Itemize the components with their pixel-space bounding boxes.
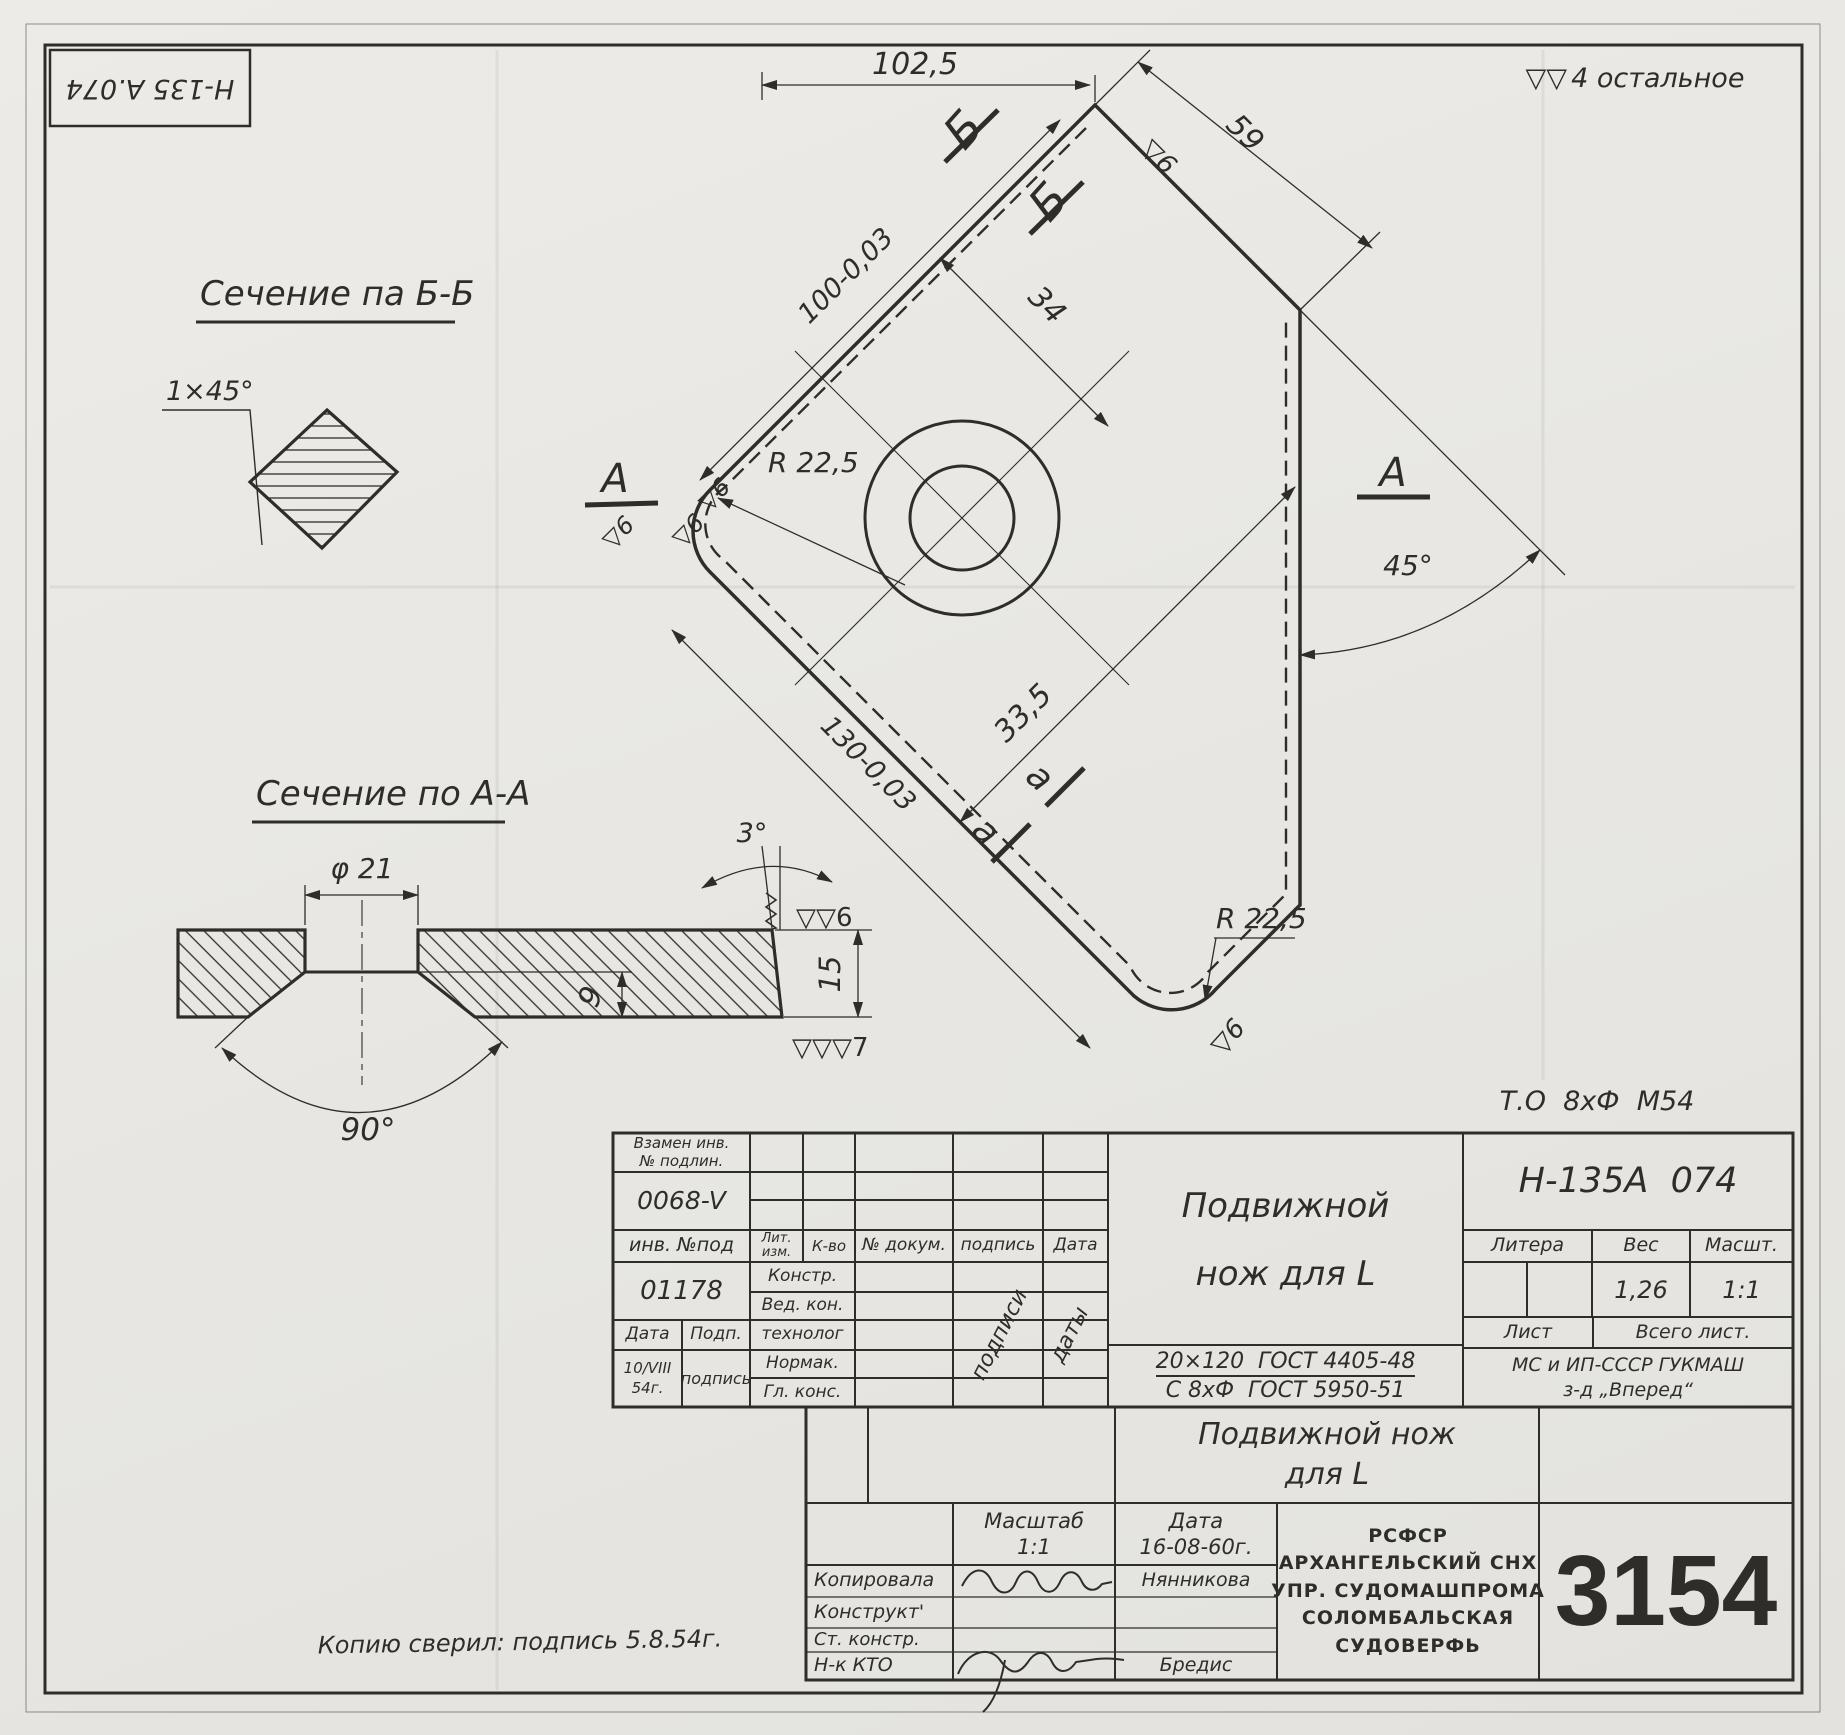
corner-code: Н-135 А.074: [50, 50, 250, 126]
section-aa-diameter: φ 21: [331, 852, 394, 885]
centerlines: [795, 351, 1129, 685]
col-lit-1: Лит.: [762, 1232, 792, 1246]
org-cell: МС и ИП-СССР ГУКМАШ з-д „Вперед“: [1463, 1348, 1793, 1407]
dim-33-5: 33,5: [987, 677, 1059, 749]
section-bb-shape: [250, 410, 397, 548]
date2-value: 16-08-60г.: [1139, 1534, 1252, 1560]
section-bb-view: Сечение па Б-Б 1×45°: [162, 274, 475, 548]
section-b-label-2: Б: [1017, 171, 1078, 231]
replaced-inv-label-1: Взамен инв.: [634, 1135, 730, 1152]
part-title-2: нож для L: [1196, 1253, 1376, 1296]
finish-mark-left-3: ▽6: [692, 473, 736, 517]
col-lit: Лит. изм.: [750, 1230, 803, 1262]
sheet-label: Лист: [1463, 1317, 1593, 1348]
title2-line-1: Подвижной нож: [1198, 1415, 1456, 1456]
dim-102-5: 102,5: [872, 47, 958, 82]
signatures: [958, 1570, 1124, 1712]
inv-value: 01178: [613, 1262, 750, 1320]
section-bb-title: Сечение па Б-Б: [200, 274, 475, 314]
finish-mark-left-2: ▽6: [666, 509, 710, 553]
finish-note-text: 4 остальное: [1571, 62, 1744, 96]
title2-line-2: для L: [1285, 1455, 1369, 1496]
drawing-sheet: 102,5 59 100-0,03 34 33,5 130-0,03 R 22,…: [0, 0, 1845, 1735]
row-nk: Н-к КТО: [806, 1652, 953, 1680]
title2-cell: Подвижной нож для L: [1115, 1410, 1539, 1500]
replaced-inv-value: 0068-V: [613, 1172, 750, 1230]
section-bb-chamfer: 1×45°: [166, 376, 254, 407]
role-normak: Нормак.: [750, 1350, 855, 1378]
section-a-right-label: А: [1376, 450, 1406, 496]
podp-label: Подп.: [682, 1320, 750, 1350]
date-label: Дата: [613, 1320, 682, 1350]
doc-number: Н-135А 074: [1463, 1138, 1793, 1226]
role-konstr: Констр.: [750, 1262, 855, 1292]
weight-value: 1,26: [1592, 1262, 1690, 1317]
copy-note: Копию сверил: подпись 5.8.54г.: [300, 1618, 741, 1666]
row-copied: Копировала: [806, 1565, 953, 1597]
weight-label: Вес: [1592, 1230, 1690, 1262]
nk-signature-flourish: [983, 1660, 1005, 1712]
main-view: 102,5 59 100-0,03 34 33,5 130-0,03 R 22,…: [585, 47, 1565, 1061]
section-a-small-2: а: [964, 809, 1008, 854]
finish-mark-left-1: ▽6: [596, 511, 640, 555]
date-value-2: 54г.: [632, 1379, 664, 1399]
finish-mark-bottom: ▽6: [1205, 1013, 1252, 1060]
dim-100: 100-0,03: [792, 222, 900, 330]
date2-label: Дата: [1169, 1508, 1223, 1534]
org-line-1: МС и ИП-СССР ГУКМАШ: [1512, 1353, 1744, 1378]
podp-value: подпись: [682, 1350, 750, 1407]
radius-left-label: R 22,5: [768, 446, 859, 479]
material-line-2: С 8хФ ГОСТ 5950-51: [1166, 1377, 1406, 1405]
role-technolog: технолог: [750, 1320, 855, 1350]
part-title: Подвижной нож для L: [1108, 1150, 1463, 1330]
section-aa-90: 90°: [341, 1112, 396, 1148]
section-a-left-label: А: [598, 456, 628, 502]
nk-name: Бредис: [1115, 1652, 1277, 1680]
scale2-cell: Масштаб 1:1: [953, 1503, 1115, 1565]
replaced-inv-label-2: № подлин.: [640, 1153, 724, 1170]
scale2-label: Масштаб: [984, 1508, 1084, 1534]
copied-name: Нянникова: [1115, 1565, 1277, 1597]
replaced-inv-label: Взамен инв. № подлин.: [613, 1133, 750, 1172]
material-spec: 20×120 ГОСТ 4405-48 С 8хФ ГОСТ 5950-51: [1108, 1345, 1463, 1407]
row-senior: Ст. констр.: [806, 1628, 953, 1652]
section-b-label-1: Б: [932, 99, 993, 159]
drawing-canvas: 102,5 59 100-0,03 34 33,5 130-0,03 R 22,…: [0, 0, 1845, 1735]
col-sign: подпись: [953, 1230, 1043, 1262]
copied-signature: [962, 1570, 1112, 1592]
inv-label: инв. №под: [613, 1230, 750, 1262]
finish-mark-top: ▽6: [1135, 134, 1182, 181]
finish-note-marks: ▽▽: [1526, 62, 1568, 96]
litera-label: Литера: [1463, 1230, 1592, 1262]
role-glkons: Гл. конс.: [750, 1378, 855, 1407]
date-value: 10/VIII 54г.: [613, 1350, 682, 1407]
col-doc: № докум.: [855, 1230, 953, 1262]
date-value-1: 10/VIII: [624, 1359, 672, 1379]
angle-45-label: 45°: [1383, 549, 1433, 582]
radius-bottom-label: R 22,5: [1216, 902, 1307, 935]
factory-line-3: УПР. СУДОМАШПРОМА: [1271, 1578, 1545, 1606]
dim-34: 34: [1021, 279, 1073, 331]
factory-line-2: АРХАНГЕЛЬСКИЙ СНХ: [1279, 1550, 1538, 1578]
section-aa-finish-bottom: ▽▽▽7: [792, 1033, 869, 1063]
section-a-small-1: а: [1018, 755, 1062, 800]
to-note: Т.О 8хФ М54: [1462, 1082, 1732, 1122]
part-title-1: Подвижной: [1182, 1185, 1390, 1228]
section-aa-finish-top: ▽▽6: [796, 903, 853, 933]
col-qty: К-во: [803, 1230, 855, 1262]
total-sheets-label: Всего лист.: [1593, 1317, 1793, 1348]
section-aa-3deg: 3°: [737, 818, 768, 849]
factory-line-4: СОЛОМБАЛЬСКАЯ: [1302, 1605, 1514, 1633]
scale-label: Масшт.: [1690, 1230, 1793, 1262]
col-date: Дата: [1043, 1230, 1108, 1262]
nk-signature: [958, 1652, 1124, 1674]
org-line-2: з-д „Вперед“: [1563, 1378, 1693, 1403]
dim-59: 59: [1219, 107, 1271, 159]
finish-note: ▽▽ 4 остальное: [1495, 58, 1775, 100]
factory-line-5: СУДОВЕРФЬ: [1335, 1633, 1480, 1661]
col-lit-2: изм.: [762, 1246, 791, 1260]
scale2-value: 1:1: [1017, 1534, 1051, 1560]
material-line-1: 20×120 ГОСТ 4405-48: [1156, 1348, 1416, 1378]
factory-line-1: РСФСР: [1368, 1523, 1448, 1551]
section-aa-title: Сечение по А-А: [256, 774, 530, 814]
role-vedkon: Вед. кон.: [750, 1292, 855, 1320]
row-designer: Конструкт': [806, 1597, 953, 1628]
section-aa-view: Сечение по А-А φ 21 90°: [178, 774, 872, 1148]
section-aa-15: 15: [813, 956, 847, 993]
order-number: 3154: [1539, 1503, 1793, 1680]
dim-130: 130-0,03: [814, 710, 922, 818]
date2-cell: Дата 16-08-60г.: [1115, 1503, 1277, 1565]
factory-cell: РСФСР АРХАНГЕЛЬСКИЙ СНХ УПР. СУДОМАШПРОМ…: [1277, 1503, 1539, 1680]
section-aa-left-body: [178, 930, 305, 1017]
scale-value: 1:1: [1690, 1262, 1793, 1317]
cutting-edge-dashed: [705, 128, 1286, 993]
